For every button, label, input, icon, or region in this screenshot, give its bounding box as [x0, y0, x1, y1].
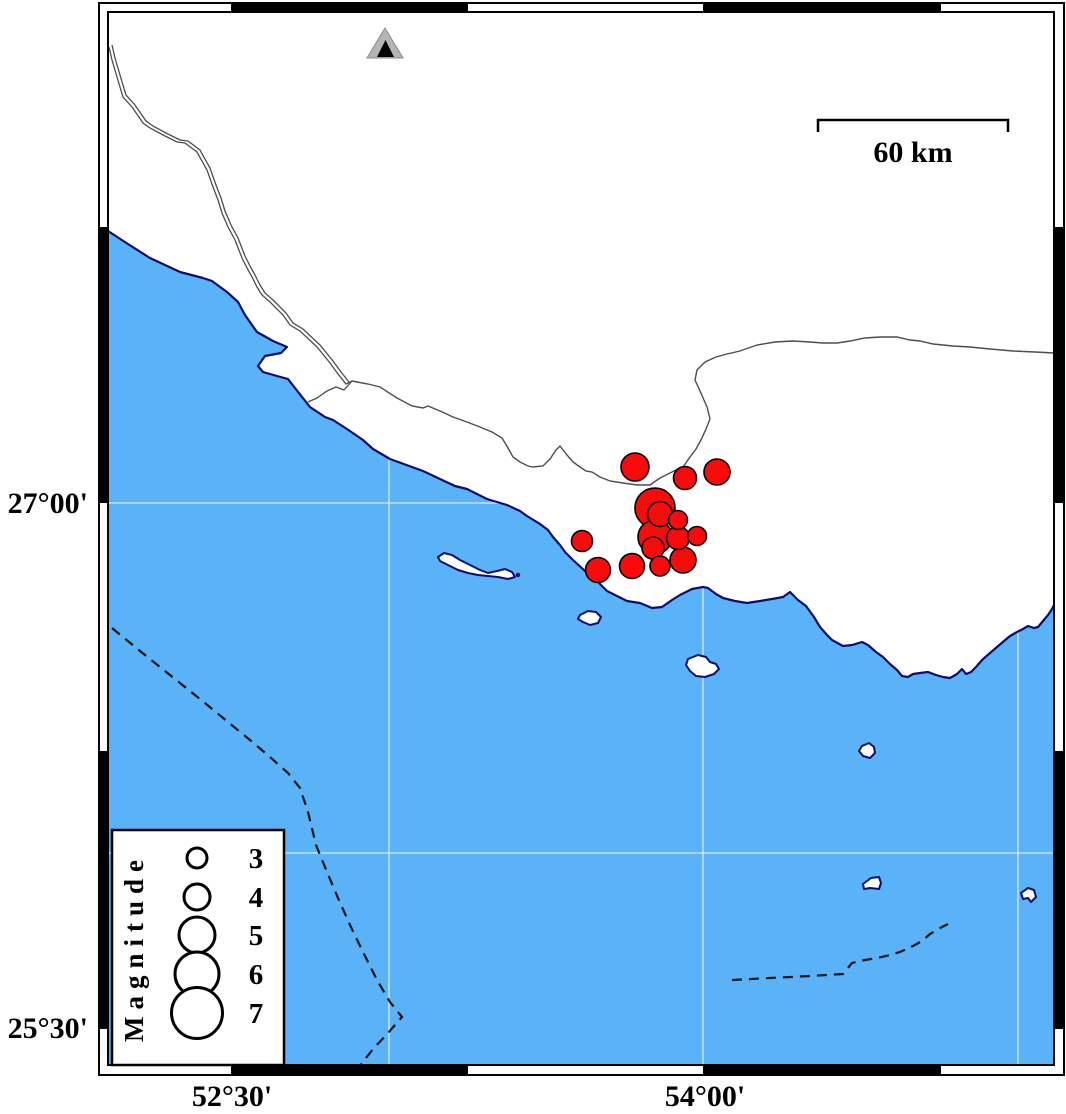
earthquake-marker: [650, 556, 670, 576]
map-canvas: 60 km Magnitude 34567 27°00' 25°30' 52°3…: [0, 0, 1066, 1114]
magnitude-legend: Magnitude 34567: [112, 830, 284, 1065]
legend-magnitude-label: 5: [249, 920, 264, 952]
legend-circle: [187, 848, 207, 868]
legend-magnitude-label: 6: [249, 959, 264, 991]
earthquake-marker: [674, 467, 697, 490]
islet: [516, 573, 520, 577]
legend-magnitude-label: 3: [249, 843, 264, 875]
scale-bar-label: 60 km: [873, 136, 952, 169]
legend-title: Magnitude: [119, 853, 149, 1042]
longitude-label: 52°30': [192, 1080, 272, 1113]
earthquake-marker: [586, 558, 611, 583]
legend-magnitude-label: 7: [249, 998, 264, 1030]
longitude-label: 54°00': [665, 1080, 745, 1113]
legend-magnitude-label: 4: [249, 882, 264, 914]
earthquake-marker: [621, 453, 649, 481]
latitude-label: 27°00': [8, 487, 88, 520]
earthquake-marker: [704, 459, 730, 485]
earthquake-marker: [669, 511, 688, 530]
earthquake-marker: [620, 554, 645, 579]
earthquake-marker: [572, 531, 593, 552]
legend-circle: [172, 988, 223, 1039]
legend-circle: [184, 884, 210, 910]
earthquake-marker: [670, 547, 696, 573]
earthquake-marker: [688, 527, 707, 546]
legend-circle: [179, 917, 215, 953]
seismicity-map-page: 60 km Magnitude 34567 27°00' 25°30' 52°3…: [0, 0, 1066, 1114]
latitude-label: 25°30': [8, 1012, 88, 1045]
